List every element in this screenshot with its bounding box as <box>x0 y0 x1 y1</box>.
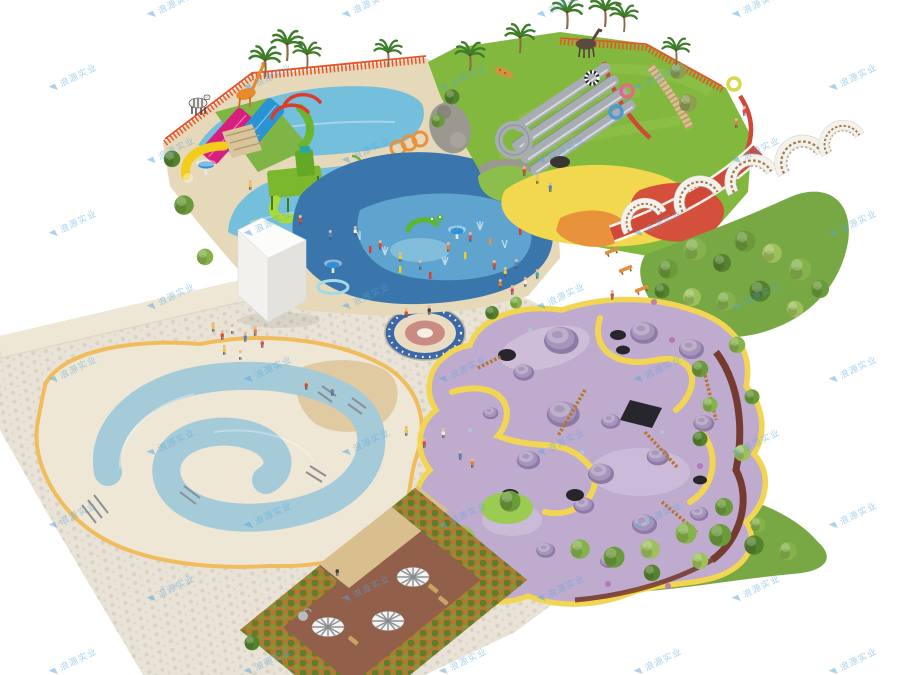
striped-parasol <box>372 612 404 631</box>
park-render <box>0 0 900 675</box>
striped-parasol <box>312 618 344 637</box>
striped-parasol <box>397 568 429 587</box>
fountain-sculpture <box>298 611 308 621</box>
render-canvas: ◥ 浪源实业◥ 浪源实业◥ 浪源实业◥ 浪源实业◥ 浪源实业◥ 浪源实业◥ 浪源… <box>0 0 900 675</box>
slide-tunnel <box>550 156 570 168</box>
